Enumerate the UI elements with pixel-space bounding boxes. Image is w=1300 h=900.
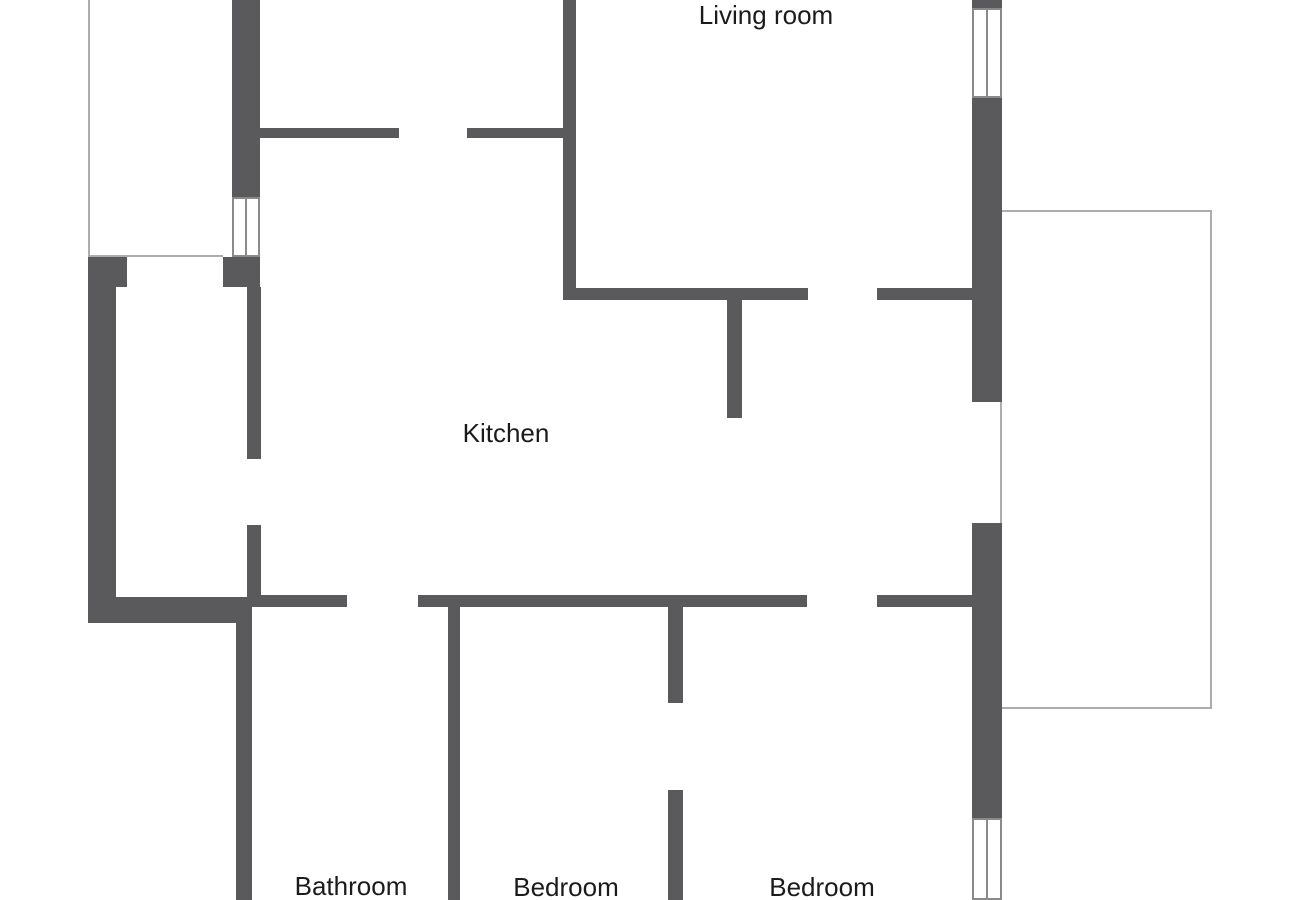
- window-right-top-mullion: [986, 10, 988, 96]
- room-label-bedroom-2: Bedroom: [769, 874, 875, 900]
- terrace-edge-bottom: [88, 255, 223, 257]
- balcony-edge-right: [1210, 210, 1212, 709]
- wall-hall-top-a: [255, 128, 399, 138]
- room-label-living-room: Living room: [699, 2, 833, 28]
- wall-living-kitchen-stub: [727, 300, 742, 418]
- window-right-bottom-mullion: [986, 820, 988, 898]
- balcony-edge-bottom: [1002, 707, 1212, 709]
- wall-kitchen-bottom: [418, 595, 807, 607]
- window-top-left: [232, 197, 260, 257]
- wall-bedroom-divider-lower: [668, 790, 683, 900]
- room-label-bedroom-1: Bedroom: [513, 874, 619, 900]
- wall-left-step: [116, 597, 250, 623]
- wall-right-upper: [972, 98, 1002, 402]
- wall-living-kitchen-a: [563, 288, 808, 300]
- floor-plan-canvas: Living room Kitchen Bathroom Bedroom Bed…: [0, 0, 1300, 900]
- wall-hall-bottom: [252, 595, 347, 607]
- wall-living-kitchen-b: [877, 288, 1002, 300]
- window-right-top: [972, 8, 1002, 98]
- wall-left-corner-block: [88, 257, 127, 287]
- wall-bathroom-left: [236, 597, 252, 900]
- wall-hall-vertical-upper: [247, 287, 261, 459]
- room-label-bathroom: Bathroom: [295, 873, 408, 899]
- wall-center-vertical: [563, 0, 576, 300]
- window-top-left-mullion: [245, 199, 247, 255]
- terrace-edge-left: [88, 0, 90, 257]
- wall-bedroom-divider-upper: [668, 605, 683, 703]
- wall-right-top-stub: [972, 0, 1002, 8]
- window-right-bottom: [972, 818, 1002, 900]
- room-label-kitchen: Kitchen: [463, 420, 550, 446]
- wall-right-mid: [972, 523, 1002, 818]
- wall-top-left-vertical: [232, 0, 260, 197]
- wall-bath-bedroom-divider: [448, 605, 460, 900]
- balcony-door-opening-line: [1000, 402, 1002, 523]
- wall-entry-block: [223, 257, 260, 287]
- balcony-edge-top: [1002, 210, 1212, 212]
- wall-left-outer: [88, 287, 116, 623]
- wall-hall-vertical-lower: [247, 525, 261, 607]
- wall-hall-top-b: [467, 128, 576, 138]
